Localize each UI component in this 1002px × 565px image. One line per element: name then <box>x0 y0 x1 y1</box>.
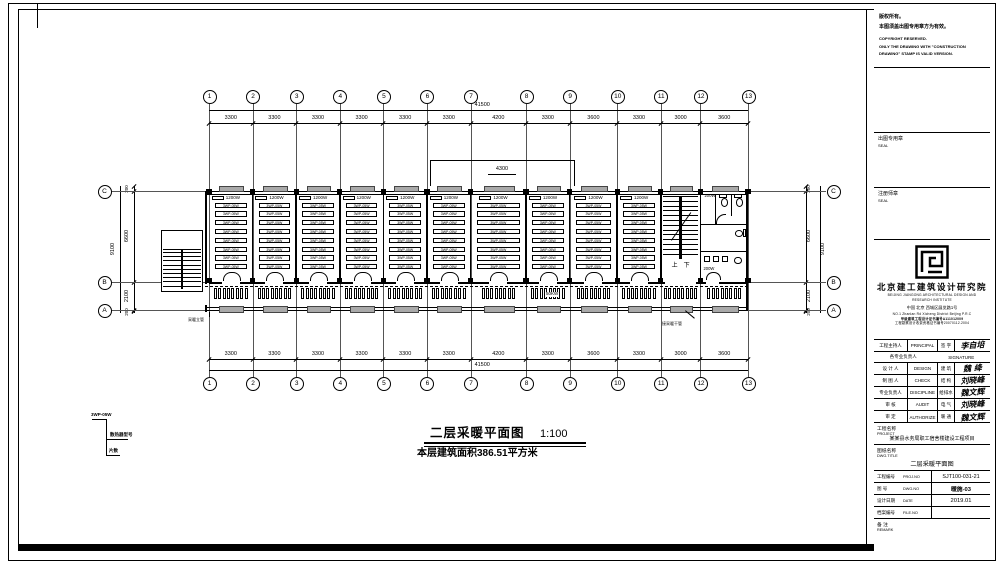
dim-label: 3000 <box>665 116 697 122</box>
sign-role-cn: 审 定 <box>874 411 908 423</box>
dim-label: 3300 <box>215 116 247 122</box>
wall-corridor <box>471 282 490 285</box>
window <box>219 306 244 313</box>
grid-bubble: 4 <box>333 90 347 104</box>
bed: 3WP-05W <box>576 211 612 216</box>
radiator-fin <box>535 288 538 299</box>
bed: 3WP-05W <box>259 211 291 216</box>
radiator-fin <box>707 288 710 299</box>
radiator-fin <box>458 288 461 299</box>
radiator-fin <box>362 288 365 299</box>
radiator-fin <box>410 288 413 299</box>
grid-bubble: 1 <box>203 90 217 104</box>
dim-total: 41500 <box>475 363 490 369</box>
room-radiator-label: 1200W <box>269 196 283 201</box>
radiator-fin <box>327 288 330 299</box>
radiator-fin <box>406 288 409 299</box>
radiator-fin <box>402 288 405 299</box>
drawing-number: 暖施-03 <box>932 483 990 494</box>
radiator-fin <box>627 288 630 299</box>
radiator-fin <box>306 288 309 299</box>
window <box>437 306 462 313</box>
window <box>537 186 562 192</box>
stair-down-label: 下 <box>684 263 690 269</box>
bed: 3WP-05W <box>623 229 655 234</box>
dim-line <box>134 186 135 313</box>
dim-label: 3300 <box>532 116 564 122</box>
dim-label: 3300 <box>258 116 290 122</box>
radiator-fin <box>419 288 422 299</box>
sign-header-row: 各专业负责人 SIGNATURE <box>874 352 990 363</box>
bed: 3WP-05W <box>623 264 655 269</box>
legend-line <box>106 439 128 440</box>
dim-label: 3300 <box>433 116 465 122</box>
wall-corridor <box>648 282 661 285</box>
seal-label: 注册师章 <box>874 188 990 198</box>
grid-bubble: 6 <box>420 90 434 104</box>
meta-row: 设计日期 DATE 2019.01 <box>874 495 990 507</box>
dim-label: 3300 <box>623 116 655 122</box>
radiator-fin <box>673 288 676 299</box>
dim-label: 3600 <box>708 352 740 358</box>
bed: 3WP-05W <box>477 264 520 269</box>
bed: 3WP-05W <box>623 255 655 260</box>
sign-role-cn: 专业负责人 <box>874 387 908 398</box>
door-arc <box>223 272 241 282</box>
radiator-fin <box>310 288 313 299</box>
toilet-fixture <box>721 198 728 207</box>
bed: 3WP-05W <box>576 247 612 252</box>
window <box>307 186 332 192</box>
radiator-fin <box>508 288 511 299</box>
radiator-fin <box>738 288 741 299</box>
grid-bubble: C <box>827 185 841 199</box>
bed: 3WP-05W <box>532 211 564 216</box>
radiator-fin <box>668 288 671 299</box>
dim-label: 200 <box>125 175 133 203</box>
radiator-fin <box>635 288 638 299</box>
radiator-fin <box>503 288 506 299</box>
meta-label-en: FILE.NO <box>903 507 932 518</box>
radiator-fin <box>581 288 584 299</box>
bed: 3WP-05W <box>346 203 378 208</box>
room-radiator-label: 1200W <box>357 196 371 201</box>
bed: 3WP-05W <box>302 211 334 216</box>
legend-line <box>106 419 107 456</box>
legend-model: 3WP-05W <box>91 413 112 418</box>
bed: 3WP-05W <box>433 264 465 269</box>
sign-discipline: 建 筑 <box>938 363 955 374</box>
bed: 3WP-05W <box>259 220 291 225</box>
bed: 3WP-05W <box>532 247 564 252</box>
copyright-box: 版权所有。 本图须盖出图专用章方为有效。 COPYRIGHT RESERVED.… <box>874 9 990 68</box>
dim-line-total <box>209 370 748 371</box>
room-radiator-label: 1200W <box>313 196 327 201</box>
radiator-fin <box>375 288 378 299</box>
radiator-fin <box>490 288 493 299</box>
grid-line <box>209 104 210 377</box>
bed: 3WP-05W <box>346 255 378 260</box>
wall-corridor <box>557 282 570 285</box>
bed: 3WP-05W <box>389 238 421 243</box>
dim-label: 9100 <box>111 235 119 263</box>
bed: 3WP-05W <box>215 220 247 225</box>
stair-rail <box>181 250 183 289</box>
wall-west <box>205 191 207 285</box>
door-arc <box>354 272 372 282</box>
dim-total: 41500 <box>475 103 490 109</box>
copyright-line: ONLY THE DRAWING WITH "CONSTRUCTION <box>874 43 990 51</box>
signature: 李自培 <box>955 340 990 352</box>
window <box>263 186 288 192</box>
radiator-fin <box>716 288 719 299</box>
title-underline-thick <box>424 442 586 444</box>
signature: 魏文辉 <box>955 410 990 423</box>
radiator-fin <box>332 288 335 299</box>
firm-name-cn: 北京建工建筑设计研究院 <box>874 281 990 293</box>
sink-fixture <box>734 257 742 265</box>
toilet-wall <box>700 224 748 225</box>
window <box>437 186 462 192</box>
remark-label-en: REMARK <box>877 528 893 532</box>
dwgtitle-box: 图纸名称 DWG.TITLE 二层采暖平面图 <box>874 445 990 471</box>
riser-note: 采暖立管 <box>188 318 204 322</box>
room-radiator-label: 1200W <box>400 196 414 201</box>
grid-bubble: 3 <box>290 377 304 391</box>
bed: 3WP-05W <box>215 203 247 208</box>
meta-row: 工程编号 PROJ.NO SJT100-031-21 <box>874 471 990 483</box>
wall-corridor <box>327 282 340 285</box>
dwgtitle-label-cn: 图纸名称 <box>877 447 898 454</box>
radiator-fin <box>393 288 396 299</box>
bed: 3WP-05W <box>576 220 612 225</box>
bed: 3WP-05W <box>346 247 378 252</box>
radiator-fin <box>371 288 374 299</box>
meta-label-en: DWG.NO <box>903 483 932 494</box>
bed: 3WP-05W <box>259 264 291 269</box>
sign-role-en: AUTHORIZE <box>908 411 938 423</box>
legend-count-label: 片数 <box>109 449 118 454</box>
sink-fixture <box>722 256 728 262</box>
bed: 3WP-05W <box>215 229 247 234</box>
toilet-wall <box>731 194 732 216</box>
radiator-fin <box>258 288 261 299</box>
radiator-fin <box>590 288 593 299</box>
sign-row: 制 图 人 CHECK 结 构 刘晓峰 <box>874 375 990 387</box>
grid-line <box>748 310 826 311</box>
wall-corridor <box>661 282 665 285</box>
bed: 3WP-05W <box>477 229 520 234</box>
dim-label: 3300 <box>346 116 378 122</box>
riser-leader <box>209 312 210 318</box>
radiator-fin <box>585 288 588 299</box>
radiator-fin <box>734 288 737 299</box>
partition-wall <box>660 194 662 282</box>
radiator-fin <box>445 288 448 299</box>
bed: 3WP-05W <box>477 247 520 252</box>
bed: 3WP-05W <box>389 211 421 216</box>
bed: 3WP-05W <box>477 203 520 208</box>
radiator-fin <box>664 288 667 299</box>
dim-label: 3300 <box>389 352 421 358</box>
radiator-fin <box>284 288 287 299</box>
window <box>670 306 693 313</box>
dim-label: 3600 <box>577 352 609 358</box>
radiator-fin <box>223 288 226 299</box>
grid-bubble: 11 <box>654 90 668 104</box>
bed: 3WP-05W <box>433 255 465 260</box>
bed: 3WP-05W <box>215 247 247 252</box>
window <box>628 186 653 192</box>
radiator-fin <box>622 288 625 299</box>
dim-line-total <box>209 110 748 111</box>
seal-box-1: 出图专用章 SEAL <box>874 133 990 188</box>
grid-bubble: 2 <box>246 377 260 391</box>
room-radiator <box>255 196 267 200</box>
grid-bubble: 12 <box>694 90 708 104</box>
sign-role-cn: 审 核 <box>874 399 908 410</box>
bed: 3WP-05W <box>532 203 564 208</box>
partition-wall <box>569 194 571 282</box>
dim-label: 3000 <box>665 352 697 358</box>
title-underline-thin <box>424 446 586 447</box>
plan-title: 二层采暖平面图 <box>430 427 525 440</box>
door-arc <box>441 272 459 282</box>
bed: 3WP-05W <box>576 238 612 243</box>
radiator-fin <box>594 288 597 299</box>
partition-wall <box>295 194 297 282</box>
sign-role-cn: 制 图 人 <box>874 375 908 386</box>
dim-label: 3300 <box>389 116 421 122</box>
radiator-fin <box>354 288 357 299</box>
grid-bubble: 2 <box>246 90 260 104</box>
window <box>219 186 244 192</box>
firm-box: 北京建工建筑设计研究院 BEIJING JIANGONG ARCHITECTUR… <box>874 240 990 340</box>
copyright-line: DRAWING" STAMP IS VALID VERSION. <box>874 50 990 58</box>
partition-wall <box>525 194 527 282</box>
grid-bubble: 13 <box>742 377 756 391</box>
dim-label: 3300 <box>623 352 655 358</box>
dim-label: 3300 <box>215 352 247 358</box>
wall-corridor <box>570 282 585 285</box>
radiator-fin <box>486 288 489 299</box>
radiator-fin <box>358 288 361 299</box>
window <box>394 186 419 192</box>
radiator-fin <box>686 288 689 299</box>
bed: 3WP-05W <box>532 220 564 225</box>
bed: 3WP-05W <box>302 203 334 208</box>
room-radiator <box>299 196 311 200</box>
radiator-fin <box>690 288 693 299</box>
radiator-fin <box>301 288 304 299</box>
bed: 3WP-05W <box>477 211 520 216</box>
radiator-fin <box>648 288 651 299</box>
grid-line <box>748 104 749 377</box>
copyright-line: 本图须盖出图专用章方为有效。 <box>874 23 990 33</box>
radiator-fin <box>323 288 326 299</box>
column <box>745 189 750 194</box>
radiator-fin <box>432 288 435 299</box>
grid-line <box>748 282 826 283</box>
dim-line-chain <box>209 359 748 360</box>
radiator-fin <box>262 288 265 299</box>
radiator-fin <box>449 288 452 299</box>
grid-bubble: A <box>98 304 112 318</box>
dim-label: 3300 <box>302 352 334 358</box>
window <box>350 186 375 192</box>
bed: 3WP-05W <box>433 203 465 208</box>
door-arc <box>540 272 558 282</box>
grid-bubble: 7 <box>464 377 478 391</box>
bed: 3WP-05W <box>302 264 334 269</box>
radiator-fin <box>288 288 291 299</box>
meta-label-cn: 设计日期 <box>874 495 903 506</box>
bed: 3WP-05W <box>302 255 334 260</box>
dim-label: 9100 <box>821 235 829 263</box>
toilet-radiator-label: 200W <box>704 194 715 198</box>
room-radiator <box>386 196 398 200</box>
firm-name-en: RESEARCH INSTITUTE <box>874 298 990 303</box>
radiator-fin <box>415 288 418 299</box>
firm-logo <box>915 245 949 279</box>
sign-row: 专业负责人 DISCIPLINE 给排水 魏文辉 <box>874 387 990 399</box>
sign-row: 工程主持人 PRINCIPAL 签 字 李自培 <box>874 340 990 352</box>
room-radiator <box>529 196 541 200</box>
wall-corridor <box>383 282 396 285</box>
radiator-fin <box>712 288 715 299</box>
sign-role-en: AUDIT <box>908 399 938 410</box>
room-radiator-label: 1200W <box>493 196 507 201</box>
bed: 3WP-05W <box>532 238 564 243</box>
window <box>581 186 608 192</box>
partition-wall <box>383 194 385 282</box>
toilet-fixture <box>736 198 743 207</box>
bed: 3WP-05W <box>215 238 247 243</box>
sink-fixture <box>704 256 710 262</box>
seal-label: SEAL <box>874 143 990 149</box>
bed: 3WP-05W <box>623 238 655 243</box>
radiator-fin <box>279 288 282 299</box>
room-radiator-label: 1200W <box>543 196 557 201</box>
grid-bubble: 5 <box>377 90 391 104</box>
radiator-fin <box>271 288 274 299</box>
bed: 3WP-05W <box>433 238 465 243</box>
sign-discipline: 结 构 <box>938 375 955 386</box>
sign-row: 审 核 AUDIT 电 气 刘晓峰 <box>874 399 990 411</box>
radiator-fin <box>231 288 234 299</box>
radiator-fin <box>531 288 534 299</box>
bed: 3WP-05W <box>259 238 291 243</box>
window <box>712 306 739 313</box>
sign-header-en: SIGNATURE <box>948 355 974 360</box>
radiator-fin <box>236 288 239 299</box>
dim-label: 6600 <box>807 222 815 250</box>
radiator-fin <box>482 288 485 299</box>
dwgtitle-label-en: DWG.TITLE <box>877 454 898 458</box>
window <box>581 306 608 313</box>
dim-label: 3600 <box>577 116 609 122</box>
grid-bubble: B <box>98 276 112 290</box>
bed: 3WP-05W <box>215 255 247 260</box>
bed: 3WP-05W <box>433 247 465 252</box>
meta-label-cn: 档案编号 <box>874 507 903 518</box>
wall-corridor <box>340 282 353 285</box>
bed: 3WP-05W <box>259 229 291 234</box>
radiator-fin <box>540 288 543 299</box>
room-radiator <box>212 196 224 200</box>
partition-wall <box>426 194 428 282</box>
bed: 3WP-05W <box>389 203 421 208</box>
radiator-fin <box>245 288 248 299</box>
plan-scale: 1:100 <box>540 429 568 440</box>
bed: 3WP-05W <box>302 229 334 234</box>
stamp-space <box>874 68 990 133</box>
meta-label-en: DATE <box>903 495 932 506</box>
sign-role-en: CHECK <box>908 375 938 386</box>
dim-label: 200 <box>807 298 815 326</box>
radiator-fin <box>214 288 217 299</box>
sign-role-en: DISCIPLINE <box>908 387 938 398</box>
seal-label: 出图专用章 <box>874 133 990 143</box>
copyright-line: 版权所有。 <box>874 13 990 23</box>
bed: 3WP-05W <box>259 247 291 252</box>
project-label-cn: 工程名称 <box>877 425 896 432</box>
radiator-fin <box>577 288 580 299</box>
wall-corridor <box>209 282 222 285</box>
sign-row: 设 计 人 DESIGN 建 筑 魏 绛 <box>874 363 990 375</box>
meta-label-cn: 图 号 <box>874 483 903 494</box>
dim-label: 3600 <box>708 116 740 122</box>
bed: 3WP-05W <box>623 203 655 208</box>
grid-bubble: 9 <box>563 377 577 391</box>
bed: 3WP-05W <box>346 220 378 225</box>
bed: 3WP-05W <box>576 264 612 269</box>
bed: 3WP-05W <box>433 229 465 234</box>
bed: 3WP-05W <box>389 229 421 234</box>
firm-cert: 工程勘察设计收费资格证书编号20070112.2004 <box>874 321 990 326</box>
wall-corridor <box>507 282 526 285</box>
grid-bubble: 11 <box>654 377 668 391</box>
radiator-fin <box>345 288 348 299</box>
grid-bubble: 9 <box>563 90 577 104</box>
titleblock-separator <box>866 9 867 551</box>
dim-label: 200 <box>125 298 133 326</box>
radiator-fin <box>495 288 498 299</box>
floor-plan: 1122334455667788991010111112121313415004… <box>0 0 1002 565</box>
toilet-wall <box>700 251 748 252</box>
door-arc <box>716 214 726 224</box>
sign-table: 工程主持人 PRINCIPAL 签 字 李自培 各专业负责人 SIGNATURE… <box>874 340 990 423</box>
radiator-fin <box>218 288 221 299</box>
dim-label: 200 <box>807 175 815 203</box>
radiator-fin <box>725 288 728 299</box>
grid-bubble: 8 <box>520 377 534 391</box>
meta-row: 档案编号 FILE.NO <box>874 507 990 519</box>
stair-up-label: 上 <box>672 263 678 269</box>
window <box>712 186 739 192</box>
bed: 3WP-05W <box>532 264 564 269</box>
grid-bubble: 6 <box>420 377 434 391</box>
bed: 3WP-05W <box>346 229 378 234</box>
wall-corridor <box>719 282 748 285</box>
window <box>350 306 375 313</box>
grid-bubble: C <box>98 185 112 199</box>
radiator-fin <box>640 288 643 299</box>
grid-bubble: 10 <box>611 90 625 104</box>
partition-wall <box>616 194 618 282</box>
wall-corridor <box>296 282 309 285</box>
bed: 3WP-05W <box>623 247 655 252</box>
